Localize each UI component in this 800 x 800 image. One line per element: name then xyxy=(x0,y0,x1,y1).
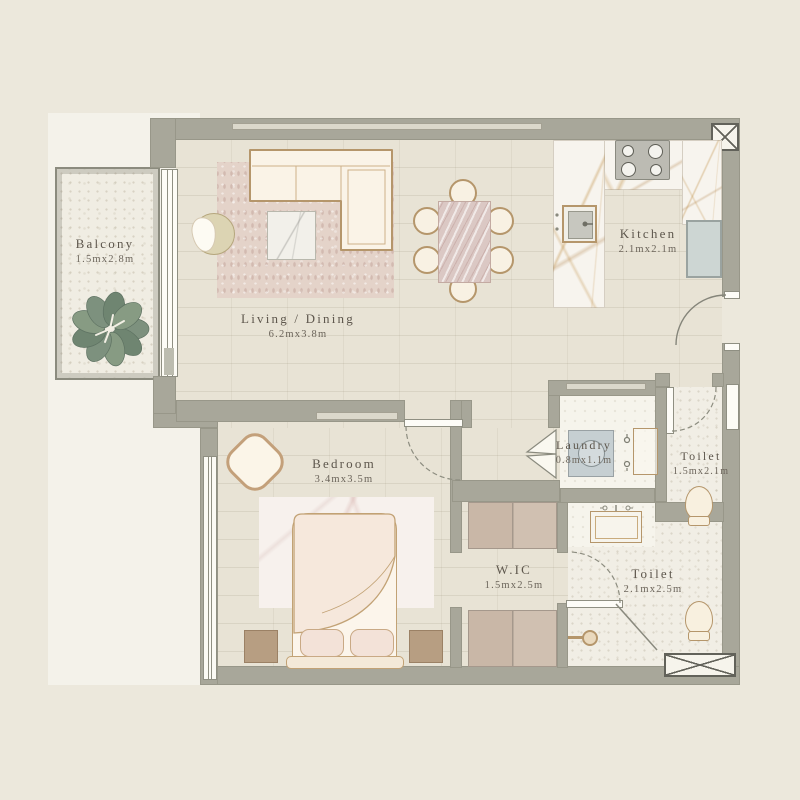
kitchen-label: Kitchen 2.1mx2.1m xyxy=(619,226,678,255)
room-name: Kitchen xyxy=(619,226,678,242)
room-name: Toilet xyxy=(624,566,683,582)
floor-plan-canvas: Balcony 1.5mx2.8m Living / Dining 6.2mx3… xyxy=(0,0,800,800)
dining-table xyxy=(438,201,491,283)
kitchen-sink xyxy=(562,205,597,243)
bed-headboard xyxy=(286,656,404,669)
wall-left-mid xyxy=(153,376,176,414)
coffee-table xyxy=(267,211,316,260)
laundry-label: Laundry 0.8mx1.1m xyxy=(556,438,612,466)
room-dims: 1.5mx2.5m xyxy=(485,580,544,591)
top-wall-window-niche xyxy=(232,123,542,130)
toilet-top-floor xyxy=(667,387,722,502)
bed-pillow-right xyxy=(350,629,394,657)
bedroom-label: Bedroom 3.4mx3.5m xyxy=(312,456,376,485)
vanity-sink xyxy=(590,511,642,543)
room-name: Living / Dining xyxy=(241,311,355,327)
room-name: Toilet xyxy=(673,449,729,464)
sink-basin xyxy=(568,211,593,239)
wall-bottom xyxy=(200,666,740,685)
wic-label: W.IC 1.5mx2.5m xyxy=(485,562,544,591)
balcony-door-slider xyxy=(164,348,174,375)
wall-right-upper xyxy=(722,140,740,297)
shower-head-icon xyxy=(582,630,598,646)
room-dims: 1.5mx2.1m xyxy=(673,466,729,477)
wall-wic-west-b xyxy=(450,607,462,668)
bedroom-window xyxy=(203,456,217,680)
shower-arm xyxy=(568,636,583,639)
room-dims: 1.5mx2.8m xyxy=(76,254,135,265)
burner-icon xyxy=(648,144,663,159)
toilet-top-label: Toilet 1.5mx2.1m xyxy=(673,449,729,477)
laundry-cabinet xyxy=(633,428,658,475)
wall-toilet-top-a xyxy=(655,373,670,387)
toilet-window xyxy=(726,384,739,430)
room-name: Bedroom xyxy=(312,456,376,472)
balcony-sliding-door xyxy=(161,169,178,377)
wall-toilet-top-b xyxy=(712,373,724,387)
wardrobe-top xyxy=(468,502,557,549)
shaft-bottom-right xyxy=(664,653,736,677)
wall-bath-west-b xyxy=(557,603,568,668)
toilet-tank-bottom xyxy=(688,631,710,641)
bathroom-door-leaf xyxy=(566,600,623,608)
nightstand-left xyxy=(244,630,278,663)
toilet-wc-bottom xyxy=(685,601,713,635)
laundry-wall-niche xyxy=(566,383,646,390)
toilet-door-leaf xyxy=(666,387,674,434)
room-name: W.IC xyxy=(485,562,544,578)
toilet-tank-top xyxy=(688,516,710,526)
stove-cooktop xyxy=(615,140,670,180)
bed-pillow-left xyxy=(300,629,344,657)
balcony-deck xyxy=(55,167,160,380)
bedroom-wall-niche xyxy=(316,412,398,420)
burner-icon xyxy=(621,162,636,177)
wall-corridor-bottom xyxy=(452,480,560,502)
room-dims: 2.1mx2.1m xyxy=(619,244,678,255)
nightstand-right xyxy=(409,630,443,663)
entrance-jamb-top xyxy=(724,291,740,299)
entrance-jamb-bottom xyxy=(724,343,740,351)
room-dims: 2.1mx2.5m xyxy=(624,584,683,595)
room-name: Balcony xyxy=(76,236,135,252)
dining-chair xyxy=(413,246,441,274)
toilet-wc-top xyxy=(685,486,713,520)
room-name: Laundry xyxy=(556,438,612,453)
room-dims: 3.4mx3.5m xyxy=(312,474,376,485)
room-dims: 0.8mx1.1m xyxy=(556,455,612,466)
kitchen-counter-right xyxy=(682,140,722,225)
bedroom-door-leaf xyxy=(404,419,463,427)
vanity-basin xyxy=(595,516,638,539)
wall-bath-west-a xyxy=(557,502,568,553)
living-label: Living / Dining 6.2mx3.8m xyxy=(241,311,355,340)
wall-vanity-top xyxy=(560,488,655,503)
wall-left-upper xyxy=(150,118,176,168)
room-dims: 6.2mx3.8m xyxy=(241,329,355,340)
fridge xyxy=(686,220,722,278)
balcony-label: Balcony 1.5mx2.8m xyxy=(76,236,135,265)
burner-icon xyxy=(650,164,662,176)
burner-icon xyxy=(622,145,634,157)
dining-chair xyxy=(413,207,441,235)
toilet-bottom-label: Toilet 2.1mx2.5m xyxy=(624,566,683,595)
wardrobe-bottom xyxy=(468,610,557,667)
